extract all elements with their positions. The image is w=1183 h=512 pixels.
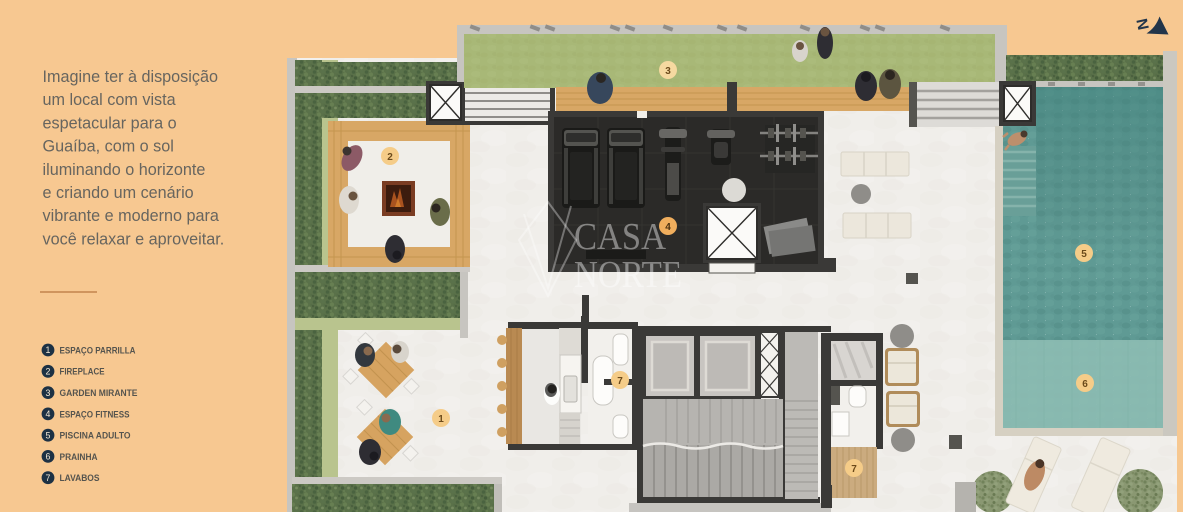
svg-text:GARDEN MIRANTE: GARDEN MIRANTE xyxy=(60,388,138,398)
svg-text:7: 7 xyxy=(851,464,857,475)
svg-text:5: 5 xyxy=(1081,249,1087,260)
svg-text:6: 6 xyxy=(1082,379,1088,390)
svg-text:LAVABOS: LAVABOS xyxy=(60,473,100,483)
svg-text:ESPAÇO PARRILLA: ESPAÇO PARRILLA xyxy=(60,345,136,355)
svg-text:4: 4 xyxy=(665,222,671,233)
svg-text:e criando um cenário: e criando um cenário xyxy=(43,184,194,202)
svg-text:3: 3 xyxy=(46,388,51,398)
svg-text:vibrante e moderno para: vibrante e moderno para xyxy=(43,207,219,225)
svg-text:1: 1 xyxy=(438,414,444,425)
svg-text:3: 3 xyxy=(665,66,671,77)
svg-text:CASA: CASA xyxy=(574,216,666,258)
svg-text:espetacular para o: espetacular para o xyxy=(43,114,177,132)
svg-text:5: 5 xyxy=(46,430,51,440)
svg-text:1: 1 xyxy=(46,345,51,355)
svg-text:7: 7 xyxy=(46,473,51,483)
svg-text:6: 6 xyxy=(46,452,51,462)
svg-text:PISCINA ADULTO: PISCINA ADULTO xyxy=(60,431,131,441)
svg-text:4: 4 xyxy=(46,409,51,419)
svg-text:NORTE: NORTE xyxy=(574,254,682,296)
svg-text:FIREPLACE: FIREPLACE xyxy=(60,367,105,377)
svg-text:Guaíba, com o sol: Guaíba, com o sol xyxy=(43,138,174,156)
svg-text:PRAINHA: PRAINHA xyxy=(60,452,98,462)
svg-text:ESPAÇO FITNESS: ESPAÇO FITNESS xyxy=(60,409,130,419)
svg-text:7: 7 xyxy=(617,376,623,387)
svg-text:2: 2 xyxy=(46,367,51,377)
svg-text:iluminando o horizonte: iluminando o horizonte xyxy=(43,161,206,179)
svg-text:você relaxar e aproveitar.: você relaxar e aproveitar. xyxy=(43,230,225,248)
svg-text:2: 2 xyxy=(387,152,393,163)
svg-text:Imagine ter à disposição: Imagine ter à disposição xyxy=(43,68,218,86)
svg-text:um local com vista: um local com vista xyxy=(43,91,176,109)
